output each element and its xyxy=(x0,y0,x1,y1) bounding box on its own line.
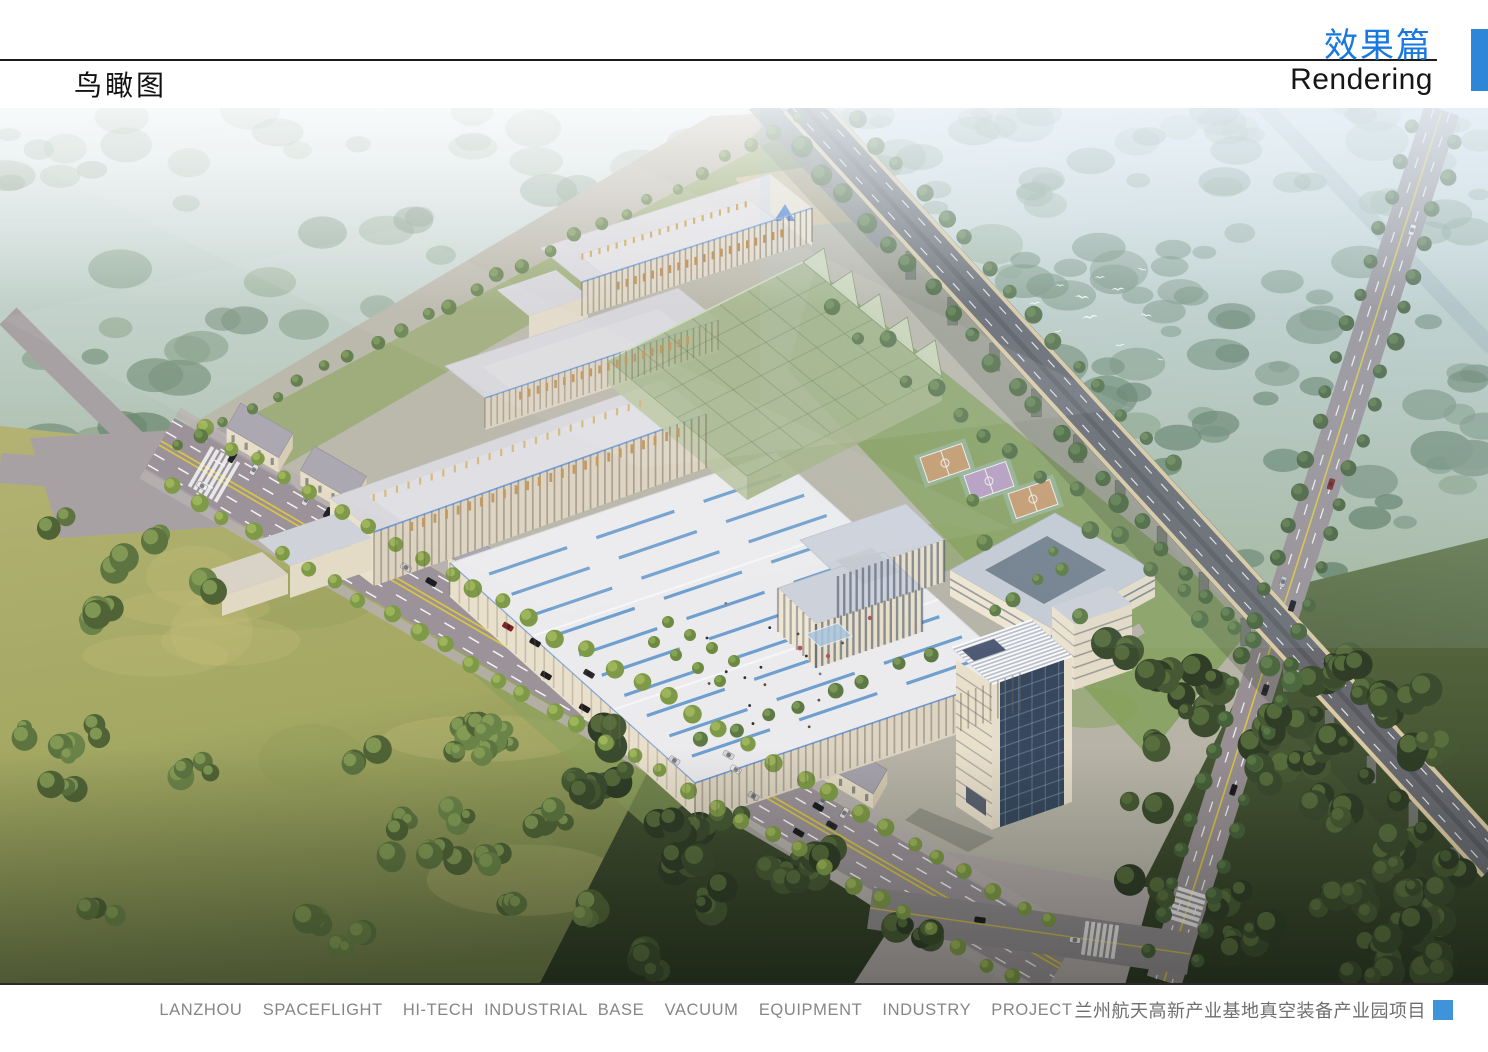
header-rule xyxy=(0,59,1437,61)
caption-english: LANZHOU SPACEFLIGHT HI-TECH INDUSTRIAL B… xyxy=(159,1001,1072,1020)
project-caption: LANZHOU SPACEFLIGHT HI-TECH INDUSTRIAL B… xyxy=(0,997,1453,1023)
aerial-rendering-svg xyxy=(0,108,1488,983)
page-title: 鸟瞰图 xyxy=(74,64,167,104)
caption-blue-square xyxy=(1433,1000,1453,1020)
caption-chinese: 兰州航天高新产业基地真空装备产业园项目 xyxy=(1075,997,1427,1023)
header-blue-tab xyxy=(1471,29,1488,91)
presentation-page: 效果篇 Rendering 鸟瞰图 xyxy=(0,0,1488,1052)
aerial-rendering-image xyxy=(0,108,1488,985)
section-title-cn: 效果篇 xyxy=(1324,18,1432,67)
bottom-vignette xyxy=(0,748,1488,983)
section-title-en: Rendering xyxy=(1290,63,1433,97)
